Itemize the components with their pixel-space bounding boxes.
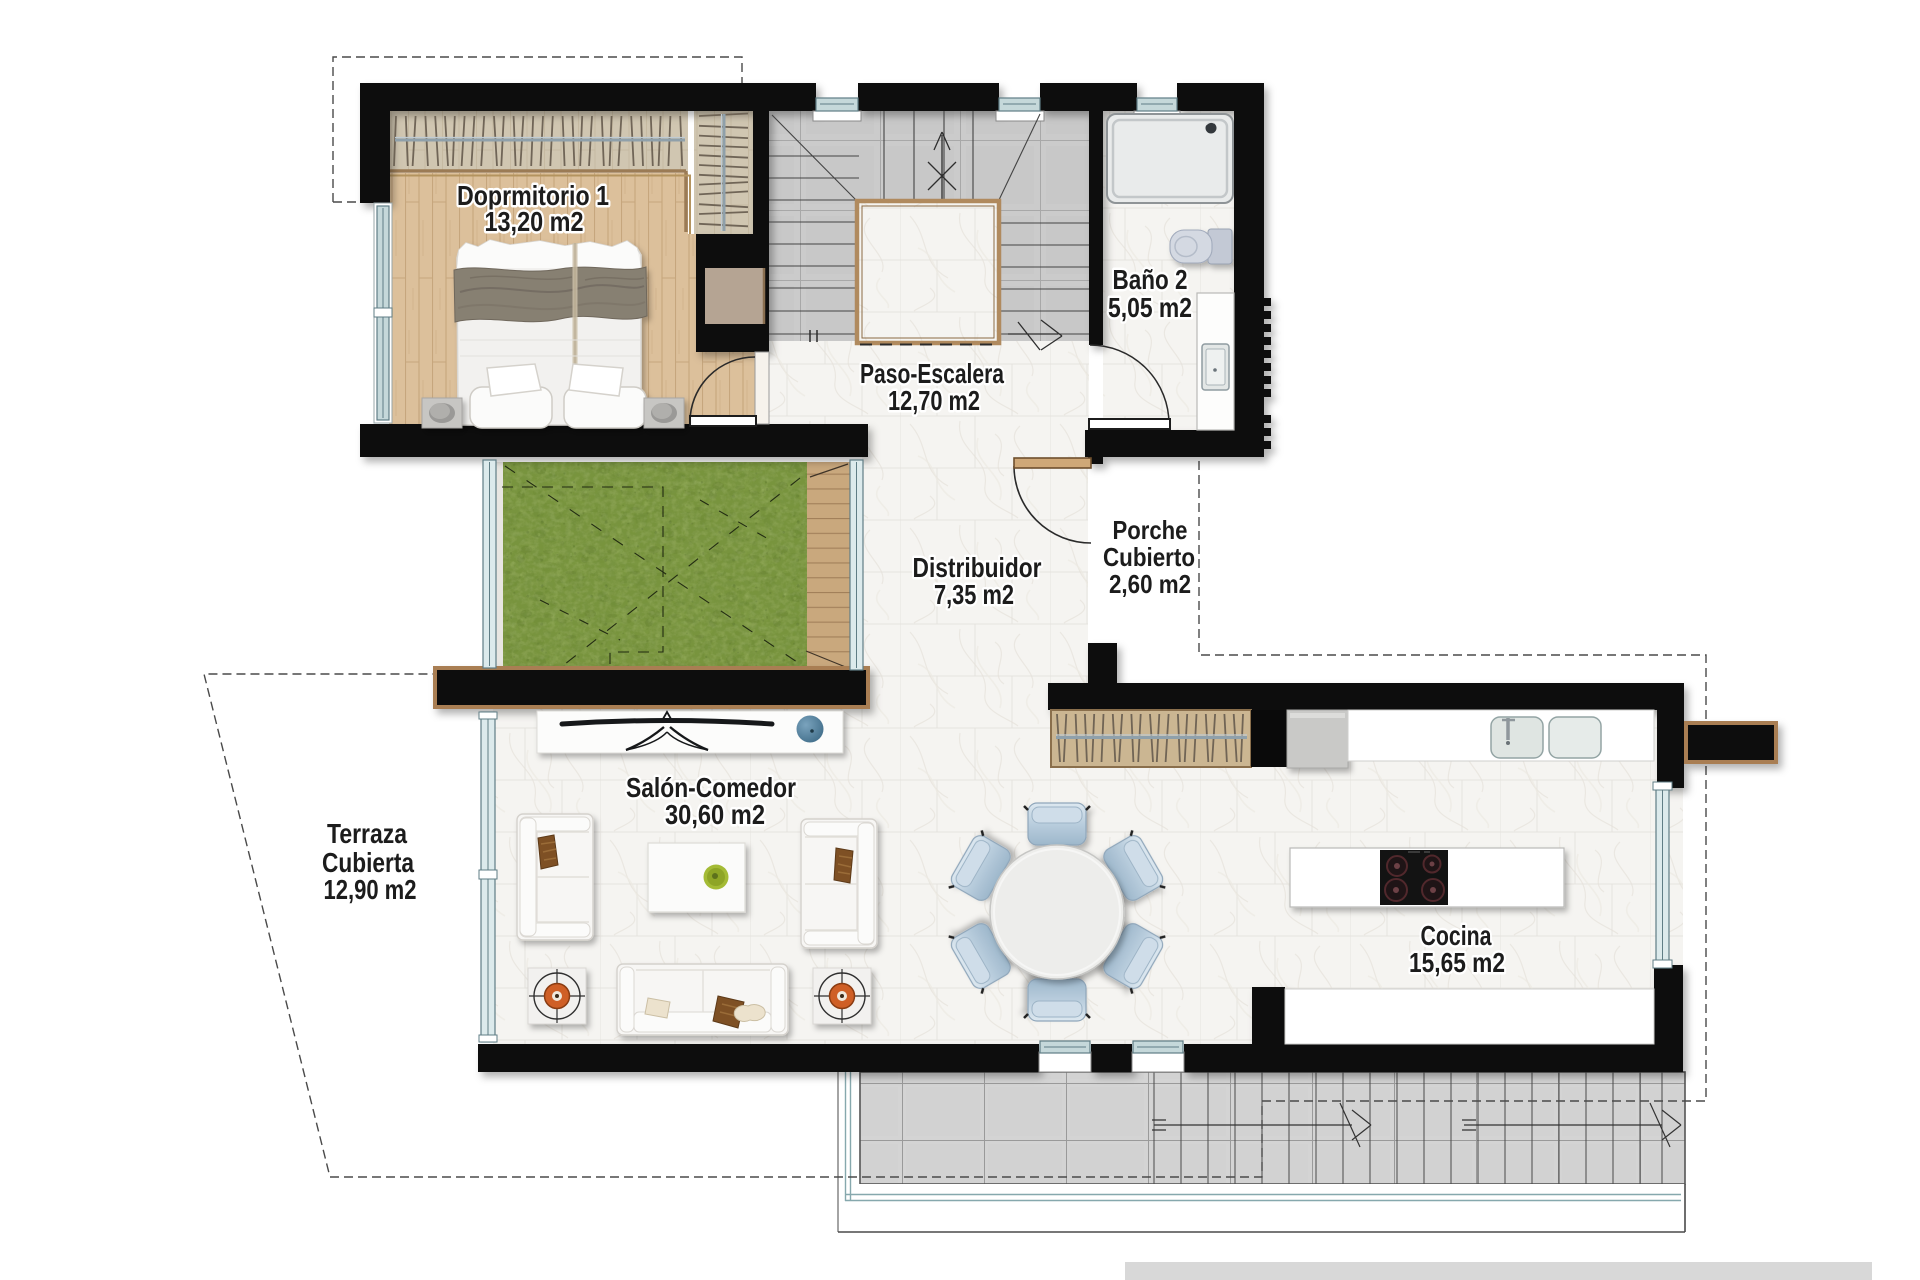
svg-text:12,70 m2: 12,70 m2 [888,385,980,416]
svg-text:15,65 m2: 15,65 m2 [1409,947,1505,978]
svg-text:13,20 m2: 13,20 m2 [485,206,584,237]
svg-text:7,35 m2: 7,35 m2 [934,579,1014,610]
svg-text:Porche: Porche [1113,515,1188,545]
svg-text:Terraza: Terraza [327,818,407,849]
svg-text:2,60 m2: 2,60 m2 [1109,569,1191,599]
svg-text:Cubierto: Cubierto [1103,542,1195,572]
svg-text:Baño 2: Baño 2 [1113,264,1188,295]
svg-text:30,60 m2: 30,60 m2 [665,799,765,830]
svg-text:5,05 m2: 5,05 m2 [1108,292,1192,323]
svg-text:12,90 m2: 12,90 m2 [324,874,417,905]
